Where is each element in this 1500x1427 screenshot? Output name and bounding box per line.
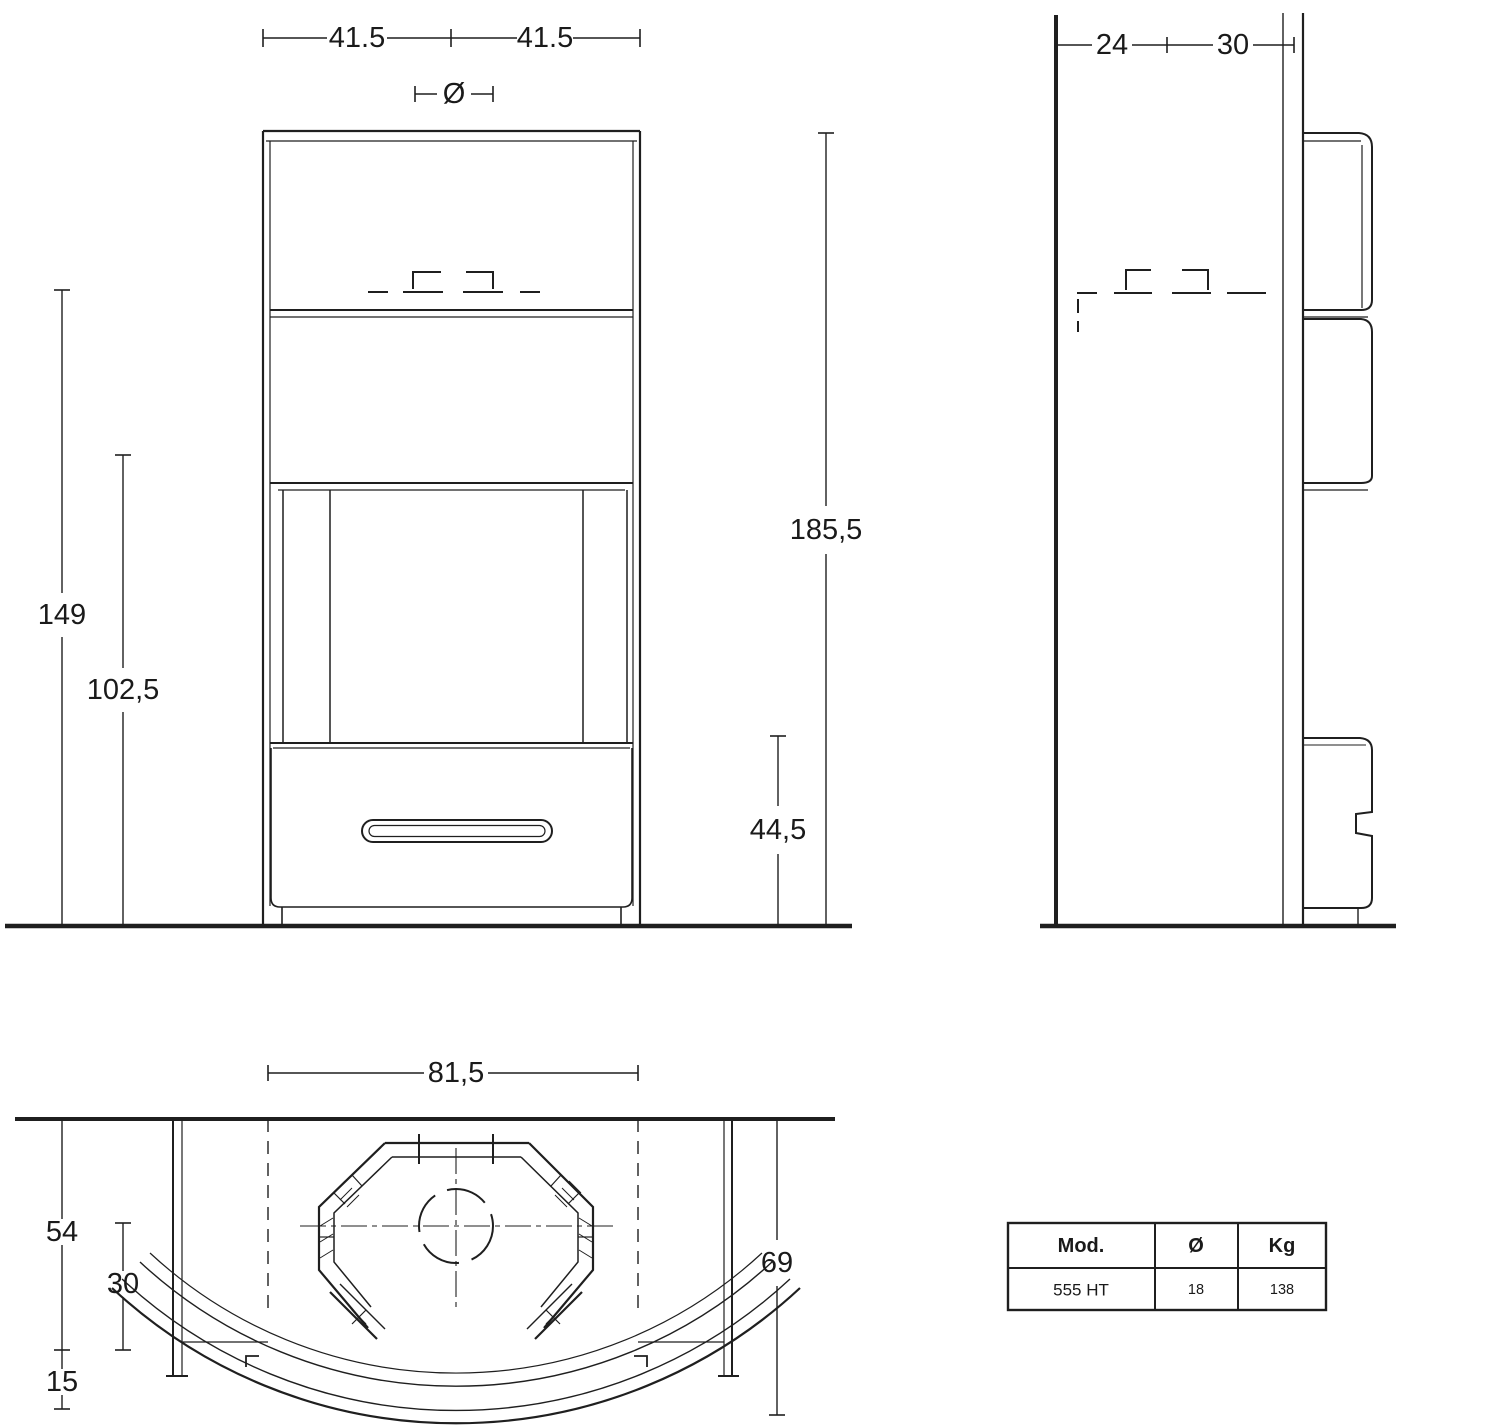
front-dim-width: 41.5 41.5 — [263, 22, 640, 54]
dim-flue-diameter-symbol: Ø — [443, 78, 466, 110]
front-dim-102-5: 102,5 — [87, 455, 160, 926]
front-firebox-pillars — [283, 490, 627, 743]
dim-total-height: 185,5 — [790, 514, 863, 546]
dim-recess-depth: 30 — [107, 1268, 139, 1300]
side-drawer-profile — [1303, 738, 1372, 908]
dim-mid-height: 102,5 — [87, 674, 160, 706]
front-dim-flue-diameter: Ø — [415, 78, 493, 110]
dim-total-depth: 69 — [761, 1247, 793, 1279]
drawer-handle — [362, 820, 552, 842]
dim-wall-clearance: 24 — [1096, 29, 1128, 61]
stove-technical-drawing: 41.5 41.5 Ø 149 102,5 185,5 — [0, 0, 1500, 1427]
dim-half-width-right: 41.5 — [517, 22, 573, 54]
plan-dim-side-depth: 54 — [46, 1119, 78, 1350]
dim-base-height: 44,5 — [750, 814, 806, 846]
plan-dim-recess-depth: 30 — [107, 1223, 139, 1350]
front-dim-149: 149 — [38, 290, 86, 926]
dim-front-offset: 15 — [46, 1366, 78, 1398]
drawing-canvas: 41.5 41.5 Ø 149 102,5 185,5 — [0, 0, 1500, 1427]
front-hidden-flue — [368, 272, 540, 292]
plan-dim-total-depth: 69 — [761, 1119, 793, 1415]
side-dim-depths: 24 30 — [1056, 29, 1294, 61]
side-hidden-flue — [1077, 270, 1266, 332]
spec-table: Mod. Ø Kg 555 HT 18 138 — [1008, 1223, 1326, 1310]
table-header-diameter: Ø — [1188, 1235, 1204, 1257]
dim-body-width: 81,5 — [428, 1057, 484, 1089]
plan-dim-front-offset: 15 — [46, 1350, 78, 1409]
table-cell-diameter: 18 — [1188, 1282, 1204, 1298]
dim-side-depth: 54 — [46, 1216, 78, 1248]
table-header-kg: Kg — [1269, 1235, 1296, 1257]
front-dim-185-5: 185,5 — [790, 133, 863, 926]
dim-flue-height: 149 — [38, 599, 86, 631]
dim-half-width-left: 41.5 — [329, 22, 385, 54]
front-drawer — [270, 743, 633, 926]
dim-back-depth: 30 — [1217, 29, 1249, 61]
table-cell-weight: 138 — [1270, 1282, 1294, 1298]
top-view: 81,5 69 54 30 15 — [15, 1057, 835, 1423]
front-dim-44-5: 44,5 — [750, 736, 806, 926]
table-header-mod: Mod. — [1058, 1235, 1105, 1257]
table-cell-model: 555 HT — [1053, 1281, 1109, 1300]
front-view: 41.5 41.5 Ø 149 102,5 185,5 — [5, 22, 862, 926]
side-view: 24 30 — [1040, 13, 1396, 926]
plan-firebox — [300, 1134, 614, 1339]
plan-dim-width: 81,5 — [268, 1057, 638, 1089]
